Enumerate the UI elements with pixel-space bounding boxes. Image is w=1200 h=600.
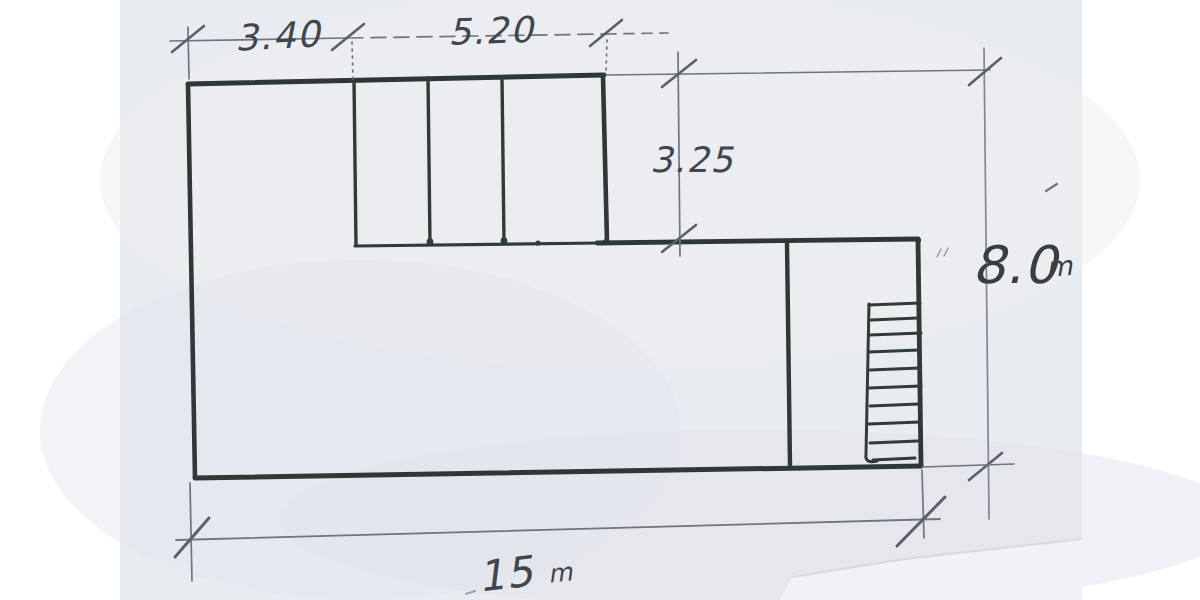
stairs-step <box>870 333 921 335</box>
stairs-step <box>869 350 919 352</box>
scanned-sketch-page: 3.40 5.20 3.25 8.0 m 15 m <box>0 0 1200 600</box>
outline-right-edge <box>918 240 921 466</box>
stair-divider <box>502 77 504 243</box>
stairs-step <box>870 404 919 406</box>
ink-blob <box>915 237 921 243</box>
ink-blob <box>427 239 434 246</box>
dimension-unit-m: m <box>1045 250 1074 283</box>
stairs-step <box>869 422 920 424</box>
dimension-label-15: 15 <box>475 546 538 600</box>
ink-blob <box>501 238 508 245</box>
stair-divider <box>428 78 430 244</box>
ink-blob <box>535 240 540 245</box>
interior-wall <box>787 243 790 465</box>
stairs-step <box>873 458 915 460</box>
dimension-label-5-20: 5.20 <box>447 9 536 53</box>
floor-plan-drawing: 3.40 5.20 3.25 8.0 m 15 m <box>0 0 1200 600</box>
dimension-label-3-40: 3.40 <box>234 13 324 59</box>
dimension-label-3-25: 3.25 <box>650 140 734 180</box>
stairs-step <box>869 303 920 305</box>
ink-blob <box>603 239 609 245</box>
stair-divider <box>354 80 356 245</box>
extension-line <box>188 27 189 79</box>
stairs-step <box>870 441 918 443</box>
stairs-step <box>870 368 920 370</box>
stairs-step <box>869 386 921 388</box>
stairs-step <box>871 318 918 320</box>
dimension-unit-m: m <box>546 557 575 589</box>
